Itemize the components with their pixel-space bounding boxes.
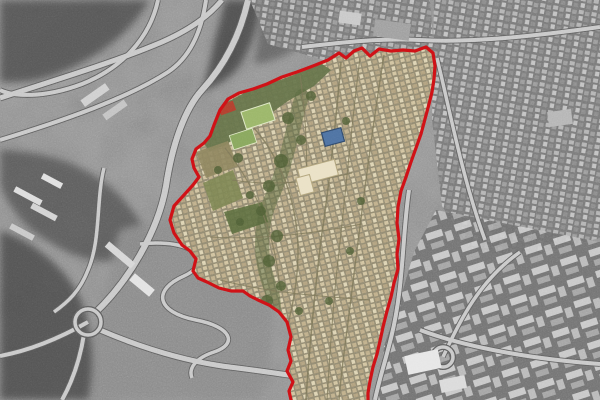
aerial-map [0,0,600,400]
aerial-map-stage [0,0,600,400]
